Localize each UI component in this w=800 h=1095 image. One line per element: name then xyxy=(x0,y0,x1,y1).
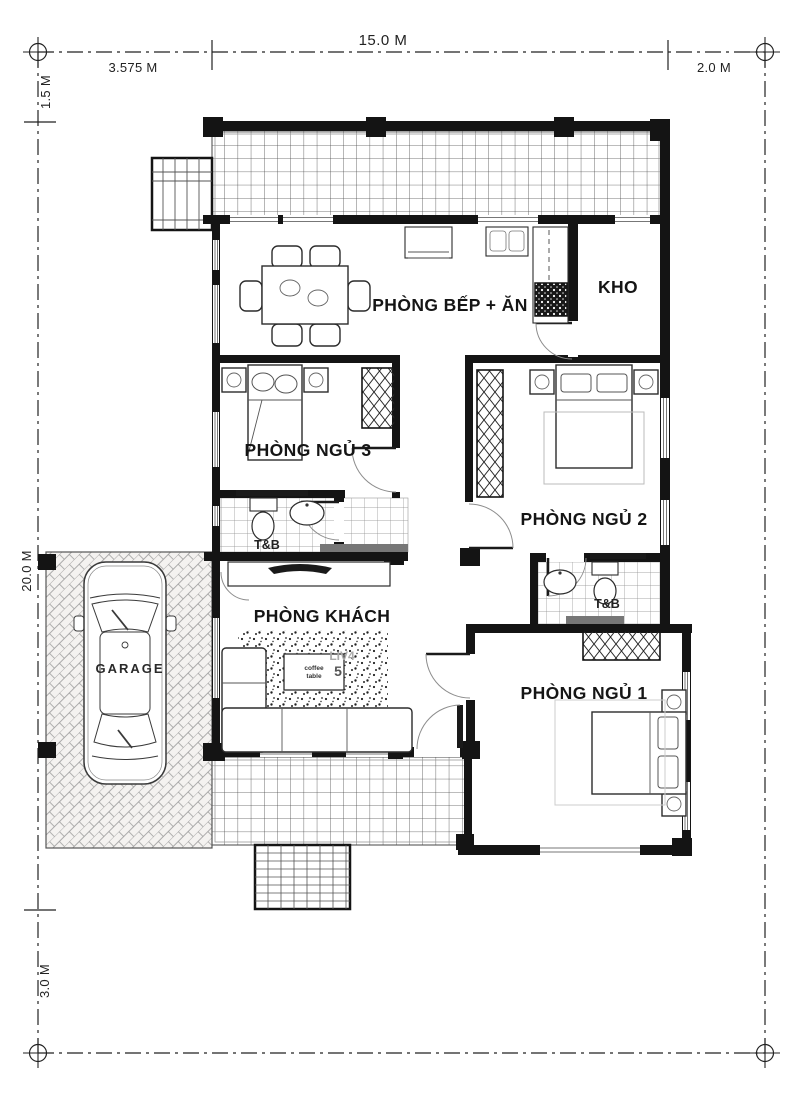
kitchen-appliance xyxy=(405,227,452,258)
column xyxy=(672,838,692,856)
pillow xyxy=(658,717,678,749)
room-label-bedroom1: PHÒNG NGỦ 1 xyxy=(521,682,648,703)
porch-east-wall xyxy=(464,757,472,845)
pillow xyxy=(658,756,678,788)
door-swing xyxy=(469,504,513,548)
window xyxy=(213,285,219,343)
lamp xyxy=(667,695,681,709)
column xyxy=(554,117,574,137)
dim-top-right: 2.0 M xyxy=(697,60,731,75)
door-gap xyxy=(414,747,460,757)
lamp xyxy=(309,373,323,387)
table-setting xyxy=(280,280,300,296)
dining-set xyxy=(240,246,370,346)
column xyxy=(456,834,474,850)
lamp xyxy=(639,375,653,389)
dim-top-left: 3.575 M xyxy=(108,60,157,75)
door-gap xyxy=(465,502,473,548)
storage-west-wall xyxy=(568,215,578,323)
sink-basin xyxy=(509,231,524,251)
terrace-east-wall xyxy=(660,121,670,228)
window xyxy=(213,240,219,270)
room-label-bath2: T&B xyxy=(594,597,620,611)
window xyxy=(230,215,278,224)
room-label-garage: GARAGE xyxy=(95,661,164,676)
room-label-kitchen-dining: PHÒNG BẾP + ĂN xyxy=(372,294,528,315)
dim-side-bottom: 3.0 M xyxy=(37,964,52,998)
cooktop xyxy=(535,283,567,316)
kitchen-south-wall xyxy=(212,355,400,363)
pillow xyxy=(561,374,591,392)
window xyxy=(540,845,640,855)
room-label-storage: KHO xyxy=(598,277,638,297)
door-leaf xyxy=(457,705,463,748)
vanity-shelf xyxy=(590,553,646,559)
table-setting xyxy=(308,290,328,306)
bedroom3-wardrobe xyxy=(362,368,395,428)
door-gap xyxy=(546,553,584,562)
toilet-tank xyxy=(250,498,277,511)
floor-plan-page: 15.0 M 3.575 M 2.0 M 1.5 M 20.0 M 3.0 M xyxy=(0,0,800,1095)
pillow xyxy=(252,373,274,391)
dining-chair xyxy=(272,324,302,346)
window xyxy=(615,215,650,224)
door-gap xyxy=(466,654,475,700)
coffee-table-label-1: coffee xyxy=(304,665,324,672)
door-gap xyxy=(568,321,578,357)
window xyxy=(661,500,669,545)
room-label-bath3: T&B xyxy=(254,538,280,552)
bedroom2-wardrobe xyxy=(477,370,503,497)
room-label-bedroom3: PHÒNG NGỦ 3 xyxy=(245,439,372,460)
vanity-shelf xyxy=(236,490,308,496)
lamp xyxy=(535,375,549,389)
living-north-wall xyxy=(204,552,408,561)
living-room-furniture xyxy=(222,562,412,752)
dining-chair xyxy=(310,246,340,268)
toilet-bowl xyxy=(252,512,274,540)
shower-curb xyxy=(320,544,408,552)
car-mirror xyxy=(166,616,176,631)
window xyxy=(661,398,669,458)
dining-chair xyxy=(240,281,262,311)
terrace-floor xyxy=(212,131,662,220)
dining-table xyxy=(262,266,348,324)
door-gap xyxy=(334,502,344,542)
lamp xyxy=(227,373,241,387)
window xyxy=(213,412,219,467)
column xyxy=(366,117,386,137)
pillow xyxy=(597,374,627,392)
door-swing xyxy=(536,323,572,359)
entry-steps xyxy=(255,845,350,909)
window xyxy=(213,618,219,698)
pillow xyxy=(275,375,297,393)
dining-chair xyxy=(310,324,340,346)
dim-top-total: 15.0 M xyxy=(359,32,408,49)
watermark-number: 5 xyxy=(334,663,342,679)
faucet xyxy=(558,571,561,574)
door-swing xyxy=(426,654,470,698)
column xyxy=(460,548,480,566)
faucet xyxy=(305,503,308,506)
garage-column xyxy=(38,742,56,758)
room-label-living: PHÒNG KHÁCH xyxy=(254,605,391,626)
bath2-west-wall xyxy=(530,553,538,633)
sofa-bottom xyxy=(222,708,412,752)
bedroom1-bed xyxy=(555,631,686,816)
lamp xyxy=(667,797,681,811)
room-label-bedroom2: PHÒNG NGỦ 2 xyxy=(521,508,648,529)
garage-column xyxy=(38,554,56,570)
dim-side-top: 1.5 M xyxy=(38,75,53,109)
porch-floor xyxy=(212,757,468,845)
window xyxy=(213,506,219,526)
door-gap xyxy=(392,448,400,492)
column xyxy=(462,741,480,759)
shower-curb xyxy=(566,616,624,624)
terrace-north-wall xyxy=(203,121,670,131)
watermark-text: LIV4 xyxy=(329,649,355,663)
toilet-tank xyxy=(592,562,618,575)
floor-plan-drawing: 15.0 M 3.575 M 2.0 M 1.5 M 20.0 M 3.0 M xyxy=(0,0,800,1095)
dim-side-main: 20.0 M xyxy=(19,550,34,592)
coffee-table-label-2: table xyxy=(306,673,322,680)
column xyxy=(203,117,223,137)
sink-basin xyxy=(490,231,506,251)
window xyxy=(283,215,333,224)
bedroom1-wardrobe xyxy=(583,631,660,660)
window xyxy=(478,215,538,224)
door-swing xyxy=(417,705,460,749)
car-mirror xyxy=(74,616,84,631)
bedroom2-bed xyxy=(477,365,658,497)
dining-chair xyxy=(348,281,370,311)
dining-chair xyxy=(272,246,302,268)
